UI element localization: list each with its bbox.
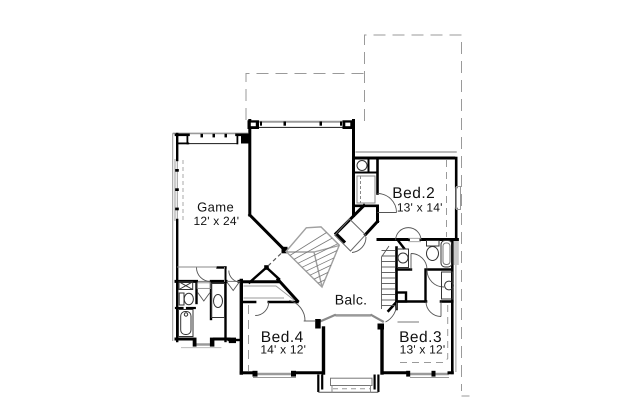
svg-text:13' x 12': 13' x 12': [400, 343, 446, 357]
svg-text:13' x 14': 13' x 14': [397, 201, 443, 215]
svg-text:Game: Game: [197, 200, 234, 215]
svg-text:12' x 24': 12' x 24': [194, 214, 240, 228]
svg-text:Balc.: Balc.: [335, 292, 368, 308]
svg-text:Bed.2: Bed.2: [392, 185, 435, 202]
svg-text:14' x 12': 14' x 12': [260, 343, 306, 357]
